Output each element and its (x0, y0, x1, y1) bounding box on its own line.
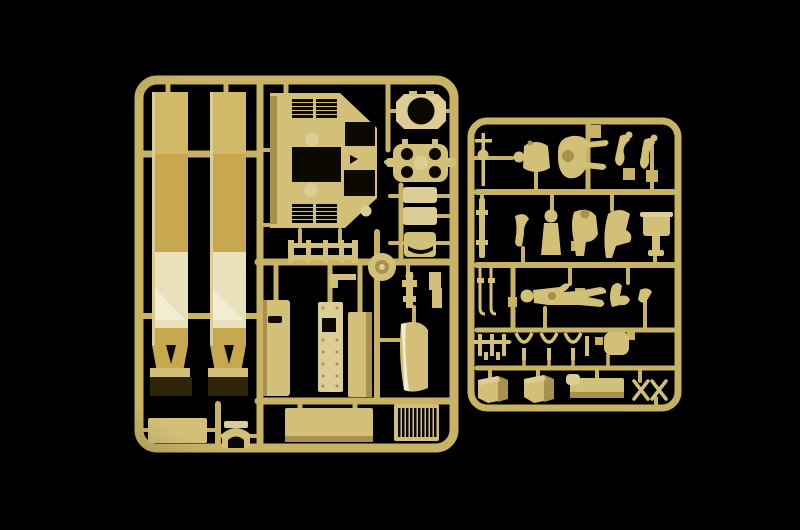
vignette-overlay (0, 0, 800, 530)
photo-stage (0, 0, 800, 530)
sprue-photograph (0, 0, 800, 530)
